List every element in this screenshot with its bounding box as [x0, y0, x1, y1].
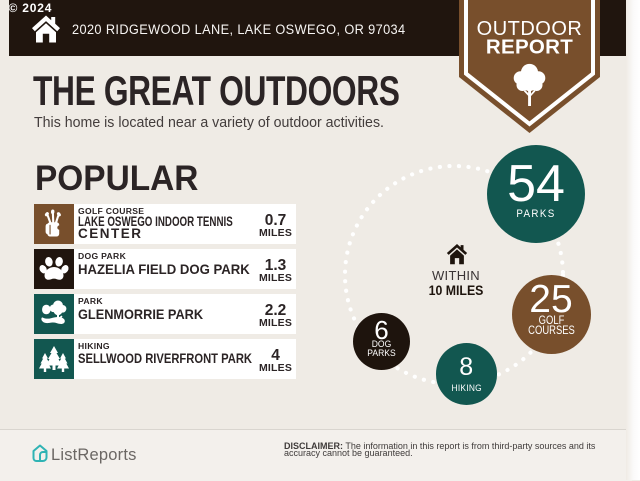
svg-text:REPORT: REPORT — [486, 36, 573, 59]
